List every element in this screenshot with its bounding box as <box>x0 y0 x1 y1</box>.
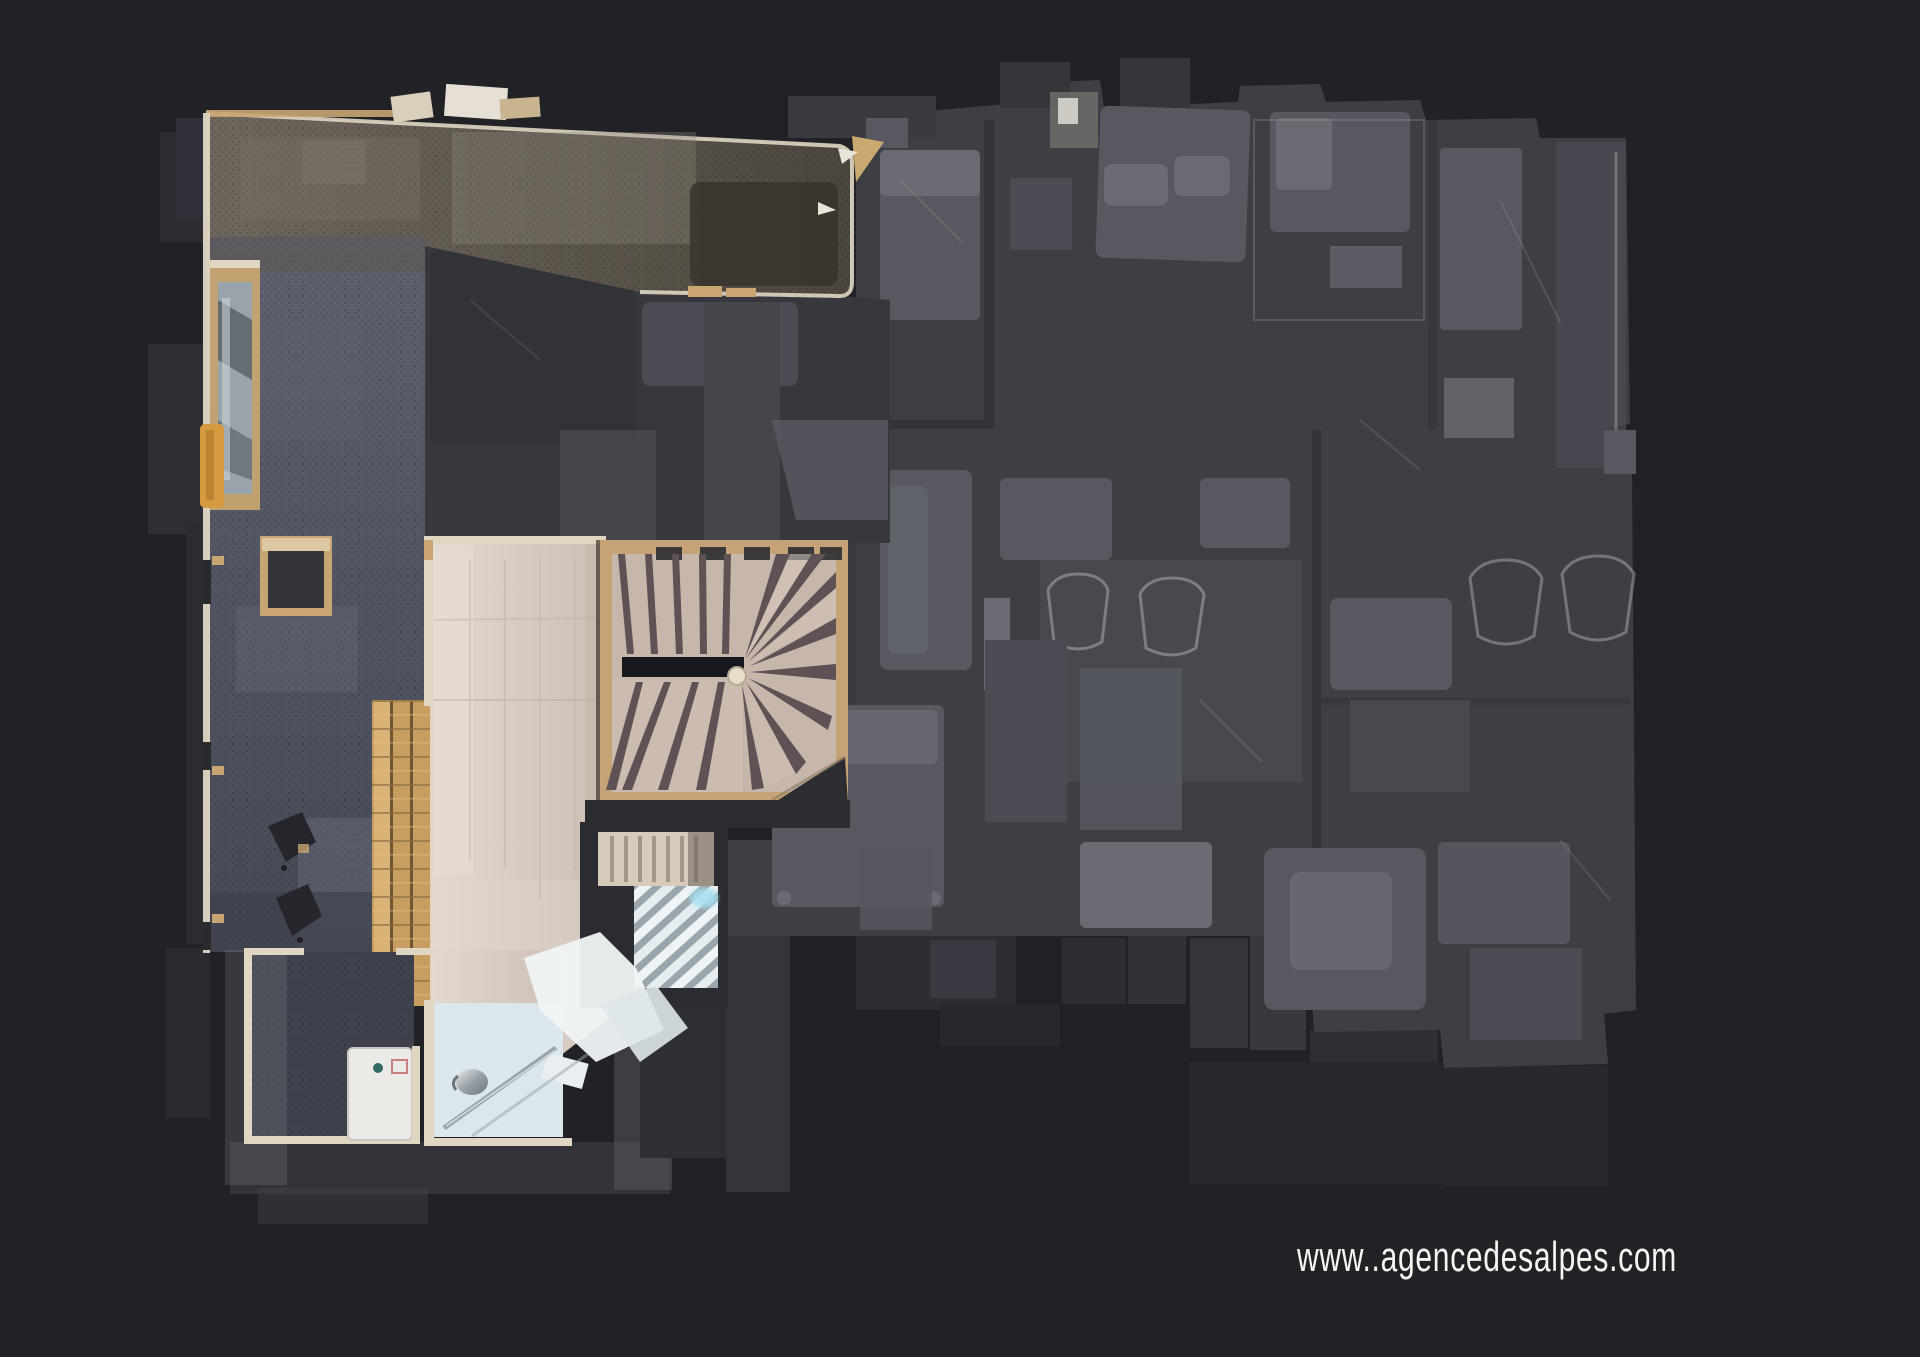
storage-box <box>260 536 332 616</box>
kettle <box>456 1069 488 1095</box>
light-glow <box>690 888 718 908</box>
floorplan-view: www..agencedesalpes.com <box>0 0 1920 1357</box>
ghost-floor-plan[interactable] <box>726 58 1636 1068</box>
shower-tray <box>348 1046 420 1140</box>
stair-void <box>622 657 744 677</box>
spiral-staircase <box>596 540 848 804</box>
watermark: www..agencedesalpes.com <box>1296 1233 1677 1280</box>
left-corridor <box>200 113 438 1008</box>
